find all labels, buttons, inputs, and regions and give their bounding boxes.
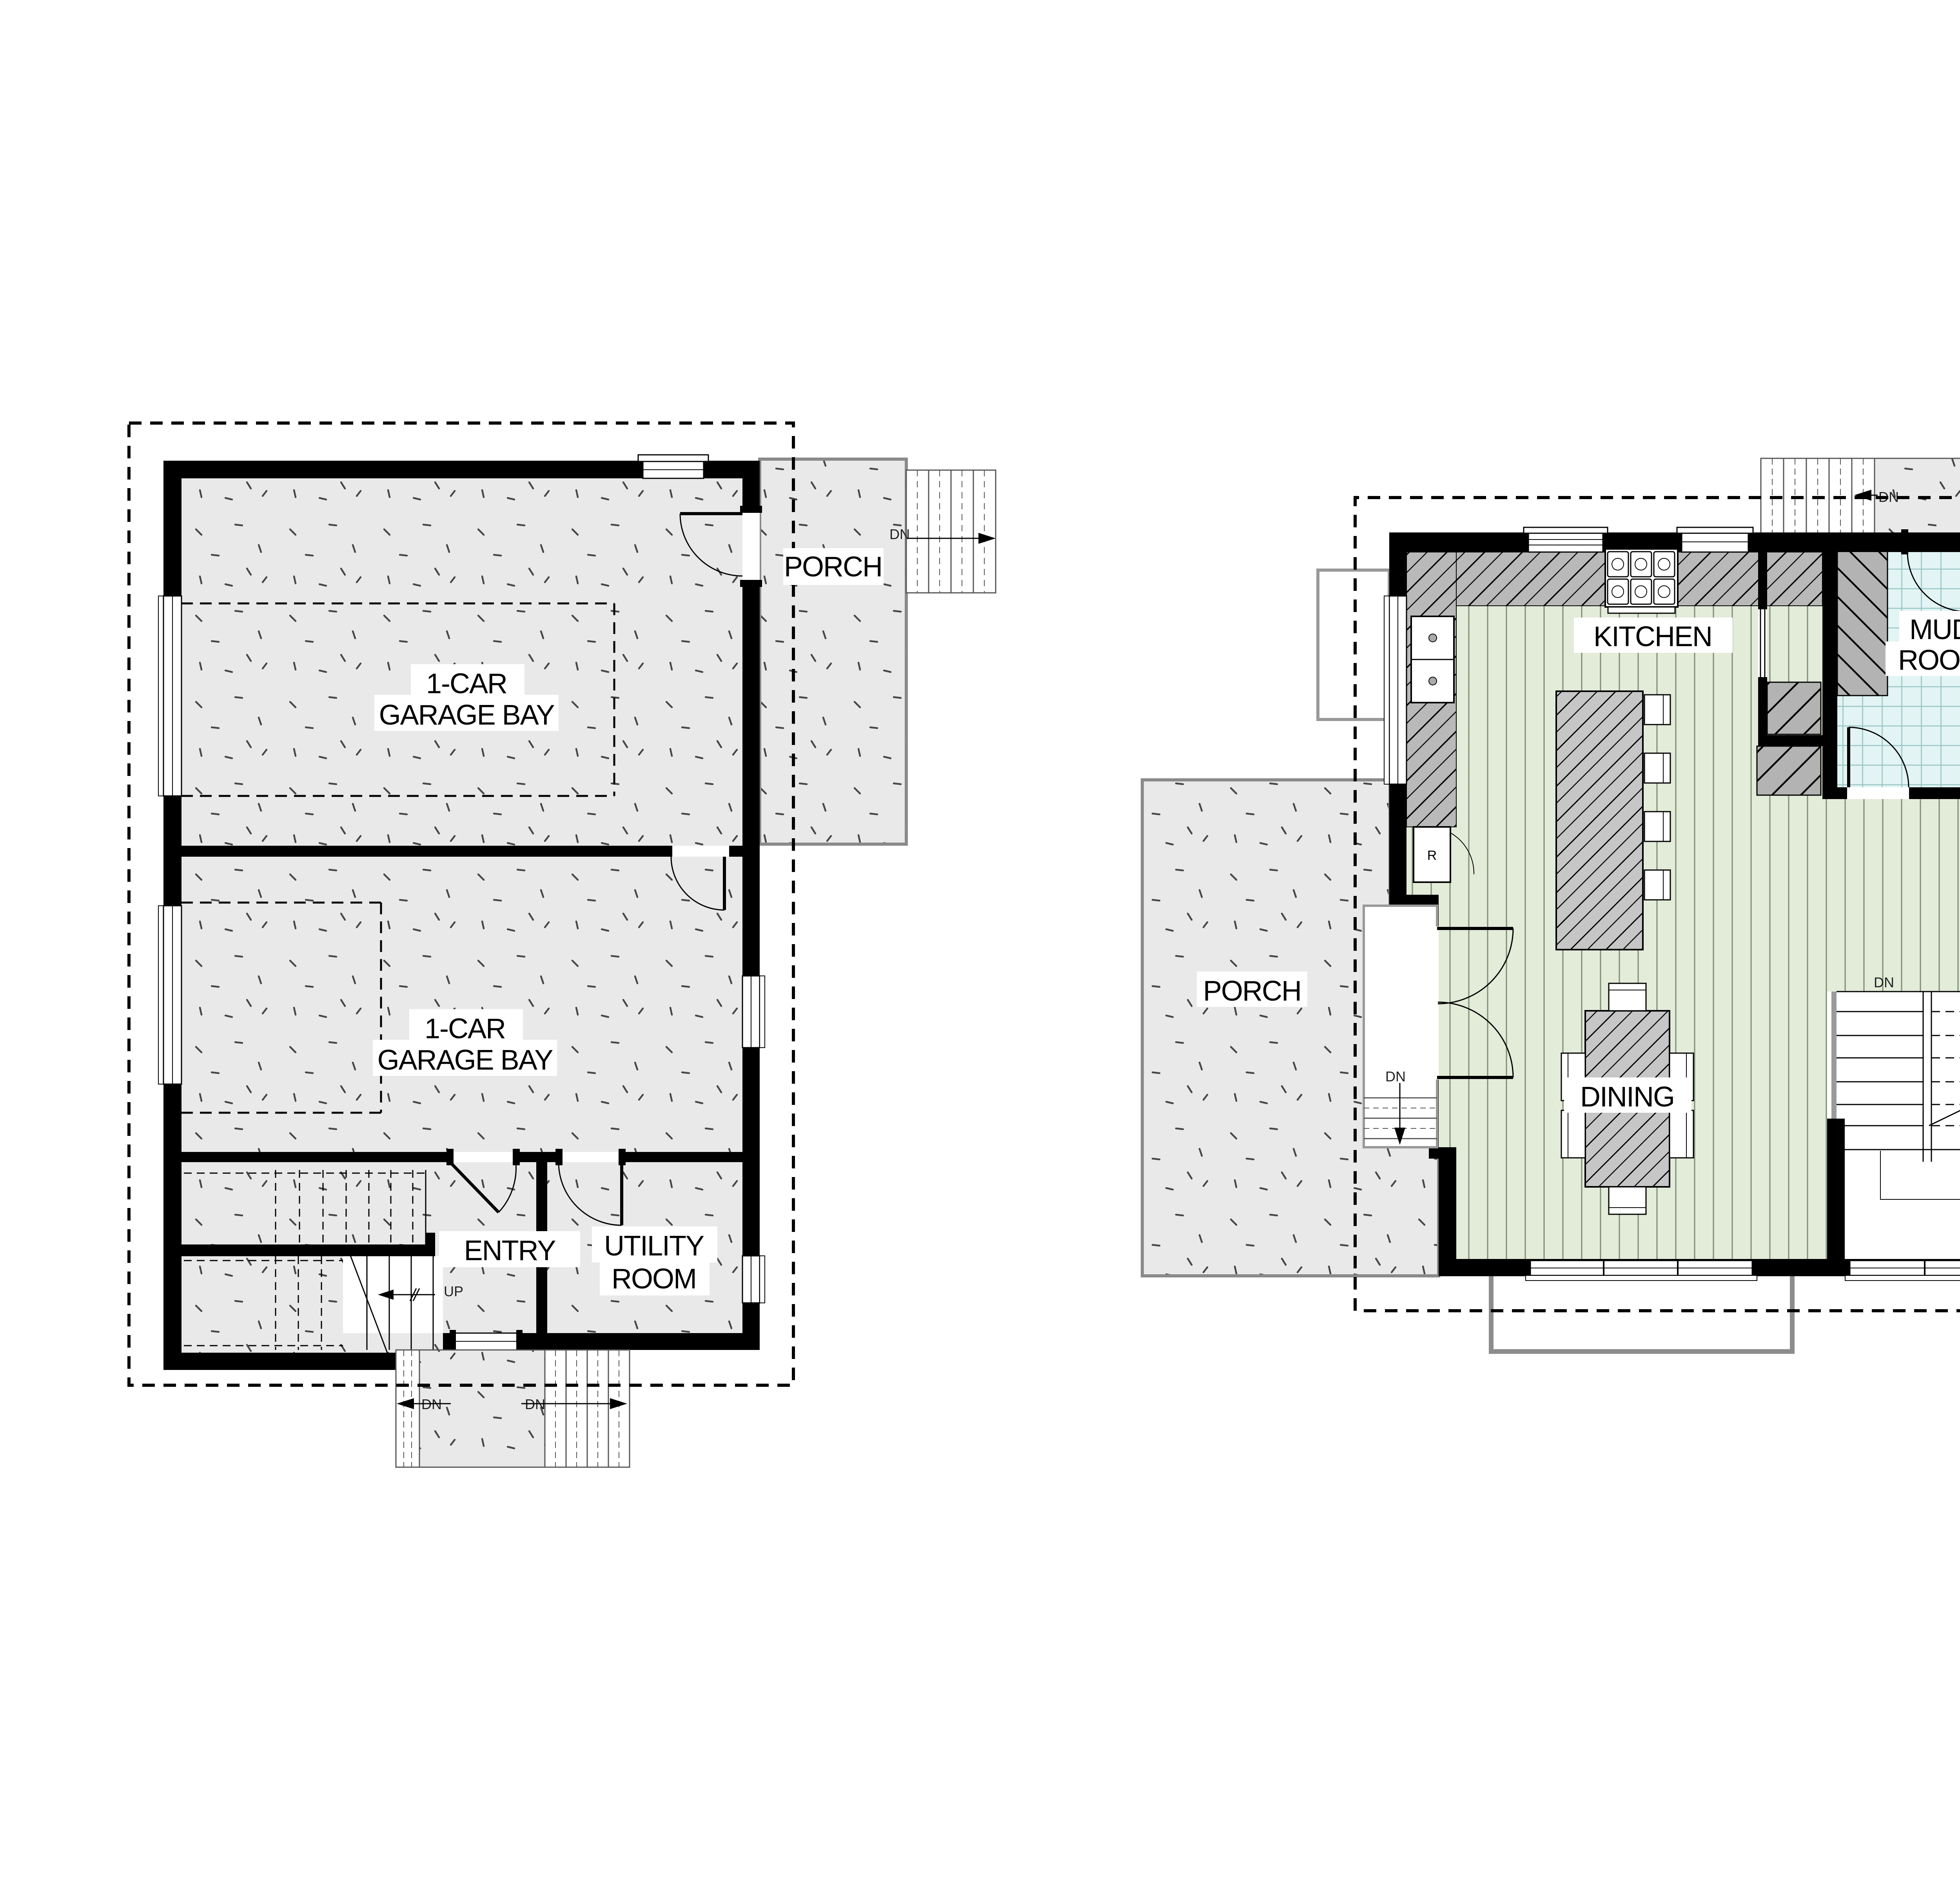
svg-text:DN: DN: [1874, 974, 1894, 990]
svg-text:DINING: DINING: [1580, 1081, 1674, 1113]
svg-text:ROOM: ROOM: [612, 1263, 696, 1295]
svg-text:R: R: [1427, 848, 1437, 863]
svg-text:UP: UP: [444, 1283, 463, 1299]
svg-text:UTILITY: UTILITY: [604, 1230, 704, 1262]
svg-text:1-CAR: 1-CAR: [425, 1013, 505, 1045]
svg-text:DN: DN: [889, 526, 910, 542]
svg-text:ENTRY: ENTRY: [464, 1235, 556, 1266]
svg-text:PORCH: PORCH: [784, 551, 882, 583]
svg-text:DN: DN: [1385, 1068, 1406, 1085]
svg-text:MUD: MUD: [1909, 614, 1960, 645]
svg-text:ROOM: ROOM: [1898, 645, 1960, 676]
svg-text:1-CAR: 1-CAR: [426, 668, 507, 699]
svg-text:GARAGE BAY: GARAGE BAY: [379, 699, 555, 731]
svg-text:GARAGE BAY: GARAGE BAY: [377, 1045, 553, 1076]
svg-text:PORCH: PORCH: [1203, 976, 1301, 1007]
svg-text:KITCHEN: KITCHEN: [1593, 621, 1712, 652]
